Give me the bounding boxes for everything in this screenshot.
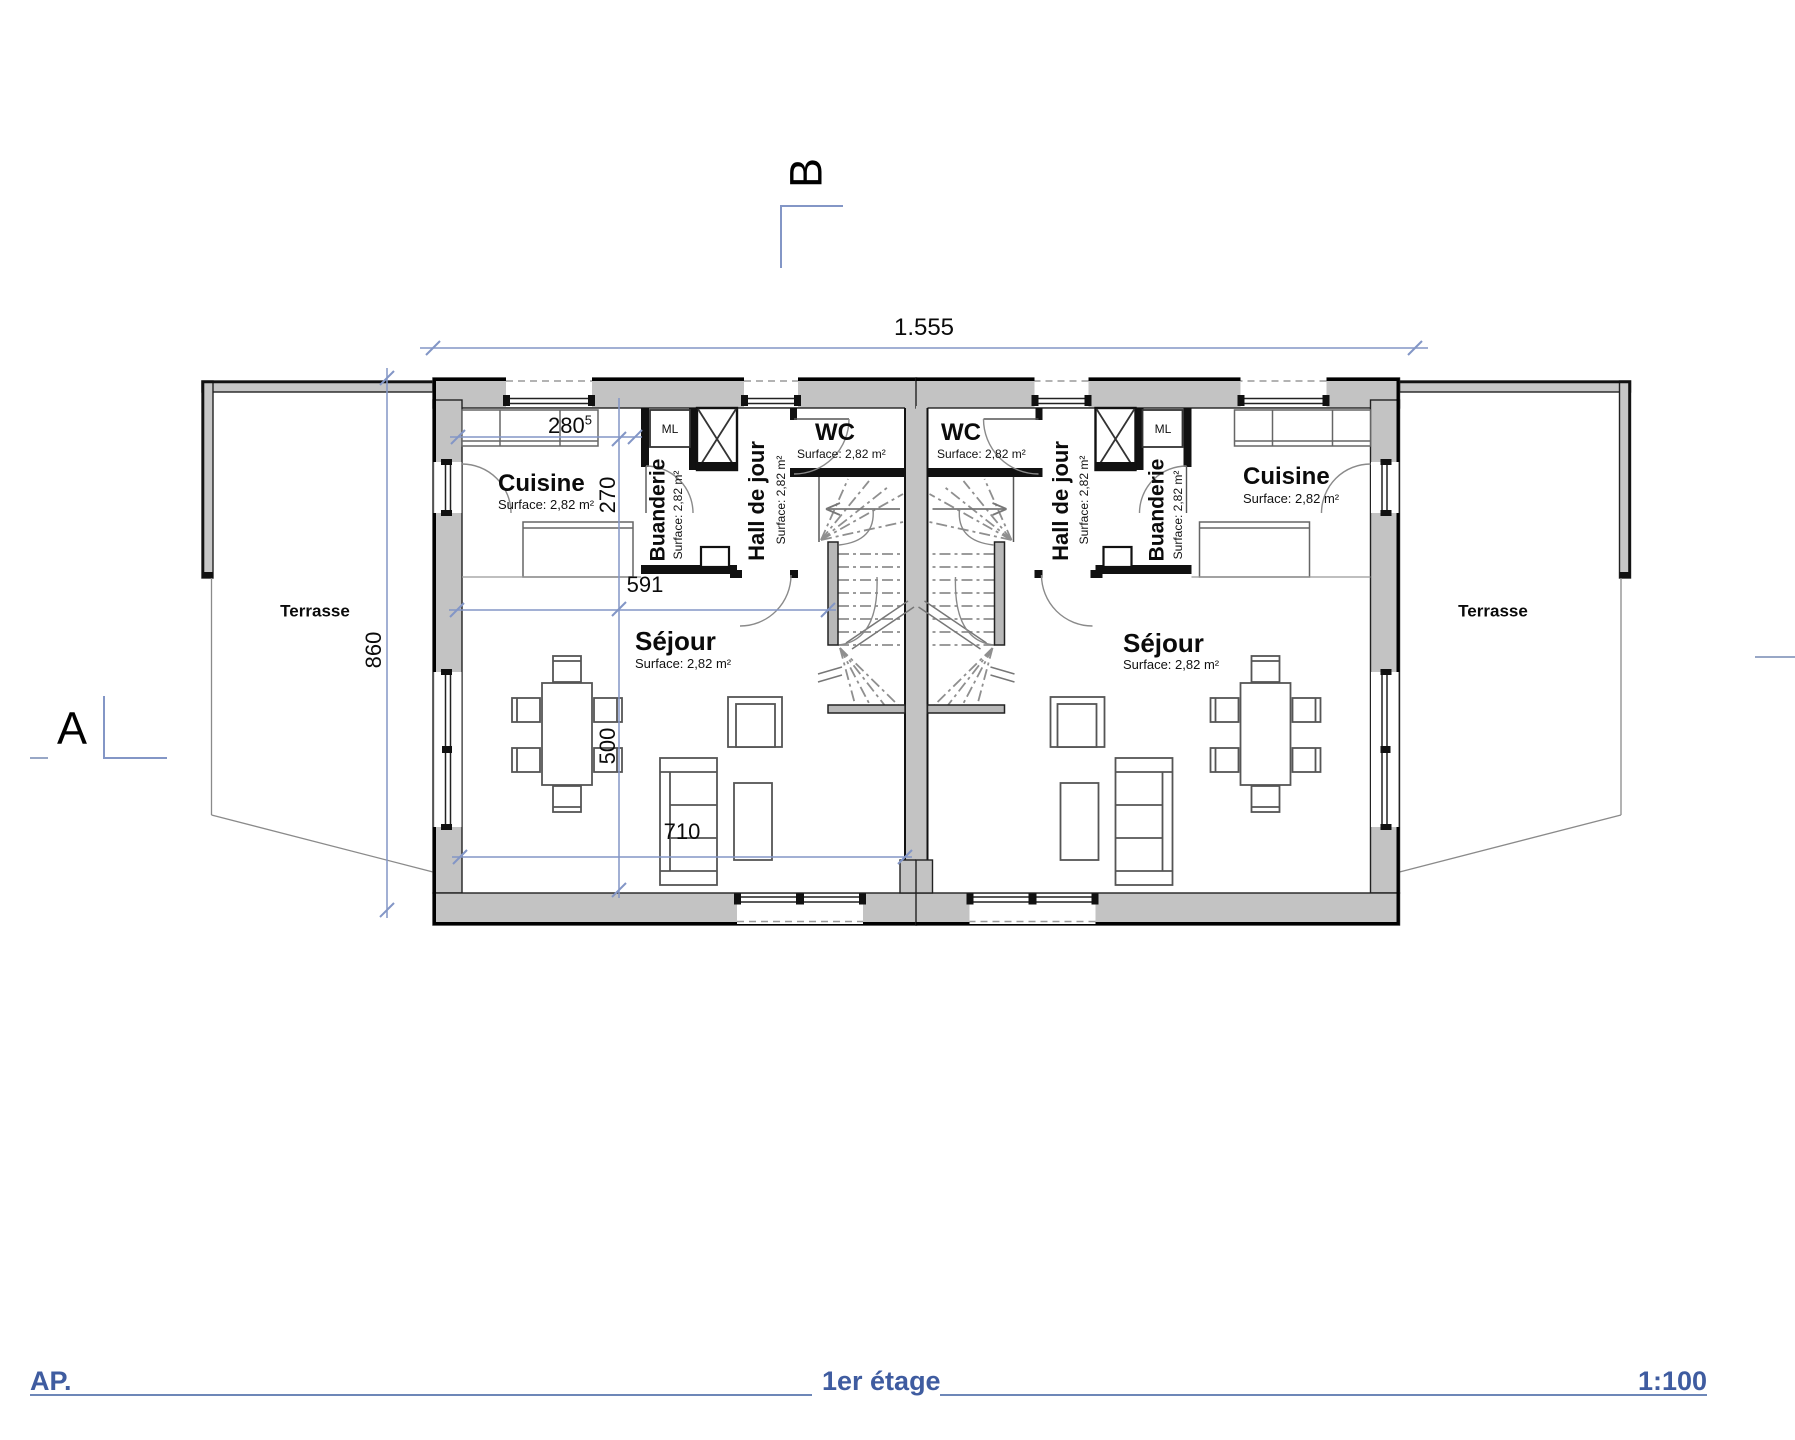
dim-kitchen-width: 2805 [548, 426, 592, 449]
room-laundry-right: Buanderie [1147, 459, 1168, 562]
terrace-right-label: Terrasse [1458, 603, 1528, 620]
room-hall-left-surface: Surface: 2,82 m² [775, 456, 787, 545]
washer-left-label: ML [662, 423, 679, 435]
room-wc-left: WC [815, 421, 855, 445]
living-furniture [512, 656, 782, 885]
dim-living-width: 591 [627, 574, 664, 596]
room-kitchen-right: Cuisine [1243, 465, 1330, 489]
floor-plan-drawing [0, 0, 1795, 1440]
dim-kitchen-depth: 270 [597, 477, 619, 514]
room-laundry-left: Buanderie [648, 459, 669, 562]
room-living-left-surface: Surface: 2,82 m² [635, 657, 731, 670]
terrace-left-label: Terrasse [280, 603, 350, 620]
room-wc-right-surface: Surface: 2,82 m² [937, 448, 1026, 460]
room-living-left: Séjour [635, 628, 716, 654]
section-marker-b: B [784, 158, 829, 188]
room-laundry-right-surface: Surface: 2,82 m² [1172, 471, 1184, 560]
room-living-right: Séjour [1123, 630, 1204, 656]
washer-right-label: ML [1155, 423, 1172, 435]
staircase [818, 477, 914, 713]
titleblock-initials: AP. [30, 1366, 72, 1397]
dim-building-depth: 860 [363, 632, 385, 669]
terrace-walls [202, 381, 433, 872]
dim-living-depth: 500 [597, 728, 619, 765]
room-laundry-left-surface: Surface: 2,82 m² [672, 471, 684, 560]
room-hall-right-surface: Surface: 2,82 m² [1078, 456, 1090, 545]
room-kitchen-left: Cuisine [498, 472, 585, 496]
floor-plan-page: B A 1.555 2805 270 591 500 710 860 Terra… [0, 0, 1795, 1440]
dim-living-width-bottom: 710 [664, 821, 701, 843]
room-wc-right: WC [941, 421, 981, 445]
dim-total-width: 1.555 [894, 316, 954, 340]
titleblock-rule-left [30, 1394, 812, 1396]
room-kitchen-left-surface: Surface: 2,82 m² [498, 498, 594, 511]
room-kitchen-right-surface: Surface: 2,82 m² [1243, 492, 1339, 505]
titleblock-scale: 1:100 [1638, 1366, 1707, 1397]
room-living-right-surface: Surface: 2,82 m² [1123, 658, 1219, 671]
titleblock-floor: 1er étage [822, 1366, 941, 1397]
room-hall-right: Hall de jour [1050, 441, 1072, 561]
room-hall-left: Hall de jour [746, 441, 768, 561]
section-marker-a: A [57, 706, 87, 751]
bottom-window [734, 894, 866, 925]
room-wc-left-surface: Surface: 2,82 m² [797, 448, 886, 460]
titleblock-rule-right [940, 1394, 1707, 1396]
section-marker-lines [104, 206, 843, 758]
